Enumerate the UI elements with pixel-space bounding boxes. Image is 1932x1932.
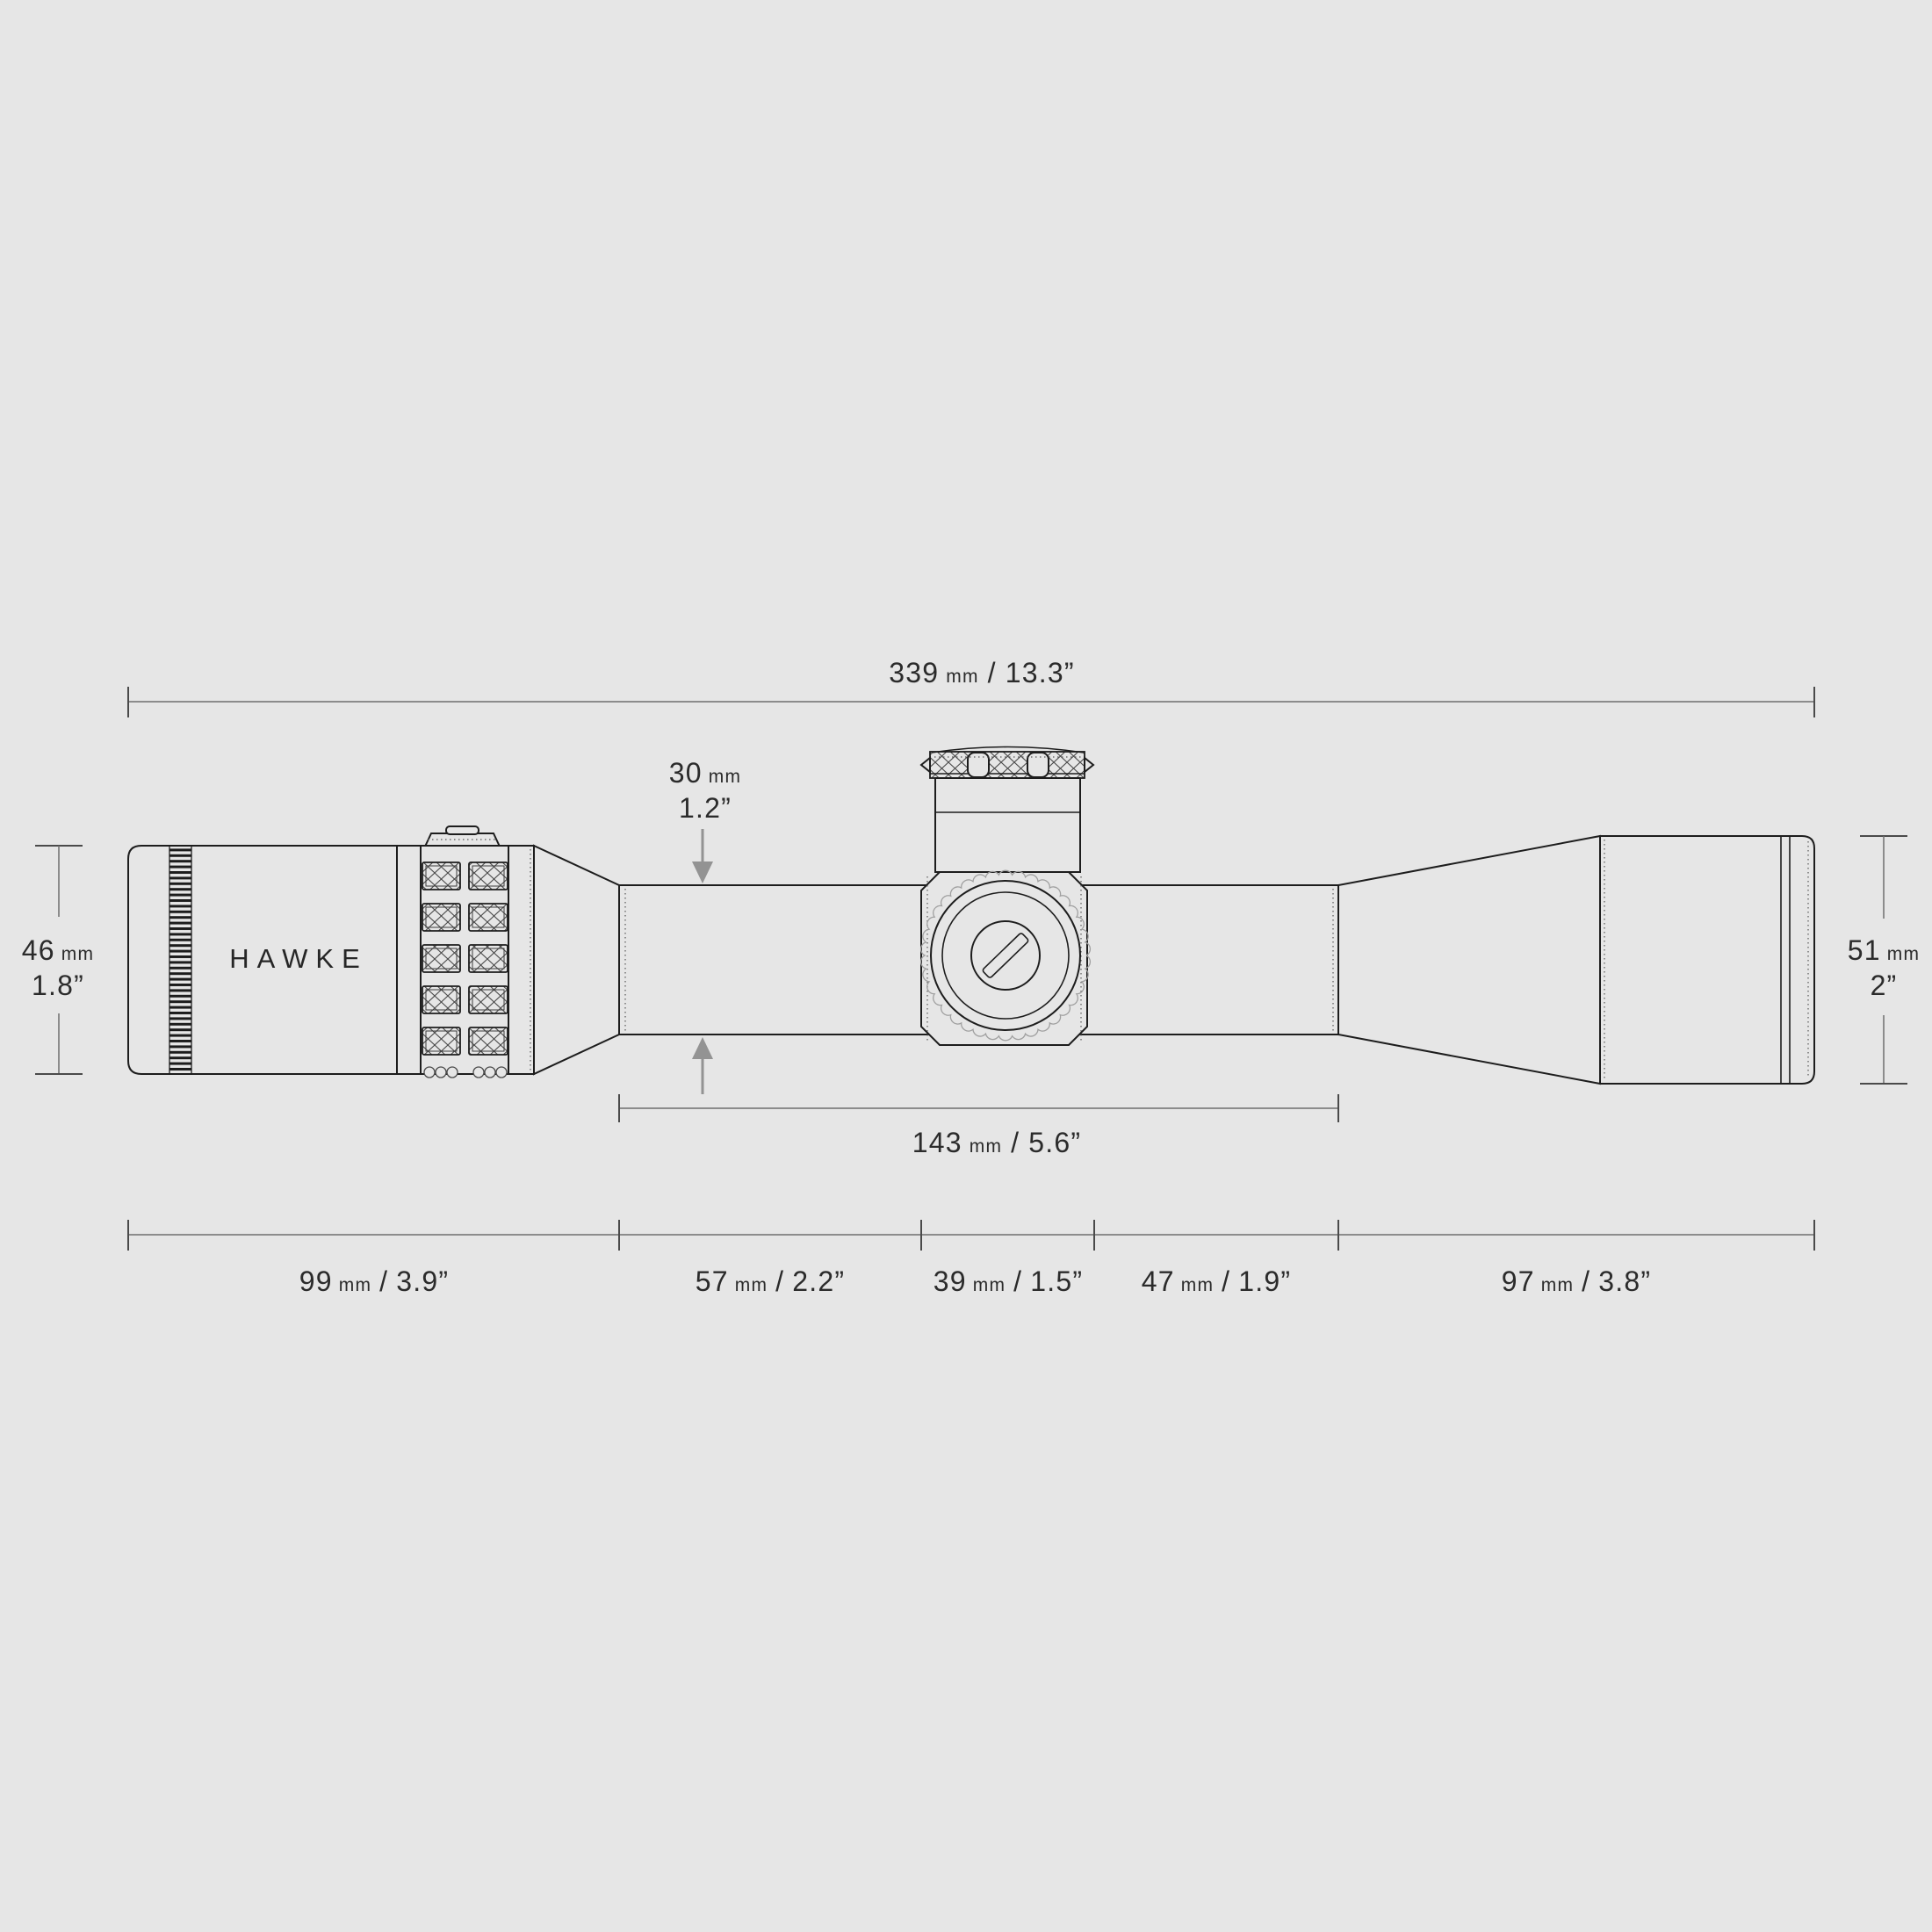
knurl-bump [424, 1067, 435, 1078]
objective-bell-body [1600, 836, 1814, 1084]
grip-pad [422, 986, 460, 1013]
diopter-ribbed-ring [169, 846, 191, 1074]
dim-tube-arrow-up [692, 1037, 713, 1094]
grip-pad [422, 862, 460, 890]
dim-ocular-bracket: 46mm 1.8” [22, 846, 94, 1074]
knurl-bump [473, 1067, 484, 1078]
zoom-indicator-hump [425, 833, 500, 847]
dim-tube-label-in: 1.2” [679, 792, 732, 824]
dim-segment-label-3: 47mm/1.9” [1142, 1265, 1291, 1297]
dim-tube-label-mm: 30mm [669, 757, 741, 789]
turret-band-button [968, 753, 989, 777]
dim-mount: 143mm/5.6” [619, 1094, 1338, 1158]
objective-taper [1338, 836, 1600, 1084]
dim-segments: 99mm/3.9” 57mm/2.2” 39mm/1.5” 47mm/1.9” … [128, 1220, 1814, 1297]
hawke-logo: HAWKE [229, 943, 368, 974]
grip-pad [469, 862, 508, 890]
dim-objective-label-mm: 51mm [1848, 934, 1920, 966]
knurl-bump [496, 1067, 507, 1078]
dim-segment-label-0: 99mm/3.9” [299, 1265, 449, 1297]
grip-pad [469, 945, 508, 972]
dim-tube-arrow-down [692, 829, 713, 883]
zoom-ring [421, 826, 508, 1078]
dim-ocular-label-in: 1.8” [32, 970, 84, 1001]
ocular-taper [534, 846, 619, 1074]
knurl-band-tip [921, 758, 930, 772]
scope-dimensions-diagram: HAWKE [0, 0, 1932, 1932]
knurl-bump [485, 1067, 495, 1078]
dim-segment-label-2: 39mm/1.5” [934, 1265, 1083, 1297]
riflescope-drawing: HAWKE [128, 747, 1814, 1085]
eyepiece: HAWKE [128, 846, 421, 1074]
elevation-turret [921, 747, 1093, 873]
turret-wheel-disc [971, 921, 1040, 990]
eyepiece-collar [397, 846, 421, 1074]
dim-overall: 339mm/13.3” [128, 657, 1814, 717]
grip-pad [469, 986, 508, 1013]
knurl-band-tip [1085, 758, 1093, 772]
grip-pad [422, 945, 460, 972]
grip-pad [422, 904, 460, 931]
objective-bell [1600, 836, 1814, 1084]
dim-ocular-label-mm: 46mm [22, 934, 94, 966]
dim-overall-label: 339mm/13.3” [889, 657, 1074, 688]
elevation-turret-body [935, 778, 1080, 872]
turret-band-button [1027, 753, 1049, 777]
grip-pad [469, 904, 508, 931]
dim-segment-label-4: 97mm/3.8” [1502, 1265, 1651, 1297]
grip-pad [469, 1027, 508, 1055]
grip-pad [422, 1027, 460, 1055]
dim-objective-label-in: 2” [1871, 970, 1898, 1001]
side-focus-turret [921, 870, 1091, 1041]
dim-segment-label-1: 57mm/2.2” [696, 1265, 845, 1297]
dim-objective-bracket: 51mm 2” [1848, 836, 1920, 1084]
zoom-indicator-tab [446, 826, 479, 834]
knurl-bump [447, 1067, 458, 1078]
dim-mount-label: 143mm/5.6” [912, 1127, 1081, 1158]
diagram-canvas: HAWKE [0, 0, 1932, 1932]
knurl-bump [436, 1067, 446, 1078]
